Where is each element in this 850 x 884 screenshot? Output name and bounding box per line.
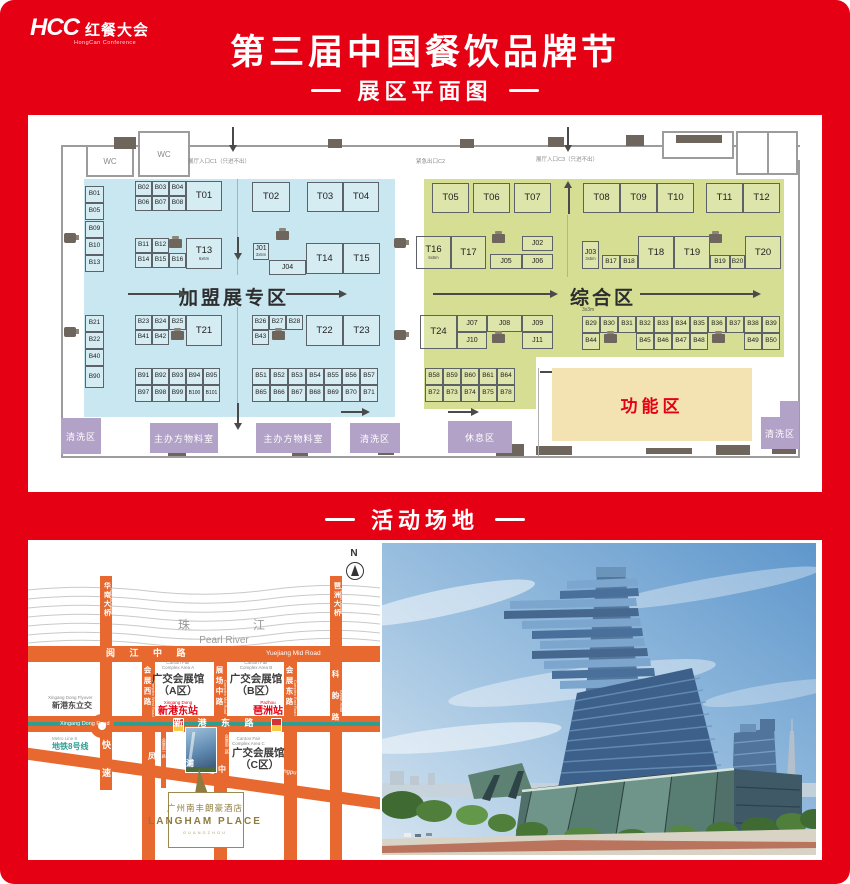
map-label: Complex East Road (292, 680, 297, 716)
booth-label: J04 (282, 264, 293, 271)
booth-B17: B17 (602, 255, 620, 269)
aisle-line (237, 179, 238, 275)
booth-label: B07 (155, 200, 167, 207)
booth-label: B66 (273, 390, 285, 397)
map-label: Xingang Dong (164, 700, 193, 705)
map-label: N (350, 548, 357, 560)
booth-label: B02 (138, 185, 150, 192)
booth-B28: B28 (286, 315, 303, 330)
map-label: 广州南丰朗豪酒店 (167, 803, 243, 813)
booth-B12: B12 (152, 238, 169, 253)
booth-label: B53 (291, 373, 303, 380)
booth-label: B101 (206, 391, 218, 396)
booth-label: B48 (693, 338, 705, 345)
map-label: Yuejiang Mid Road (266, 650, 321, 658)
poster-card: HCC 红餐大会 HongCan Conference 第三届中国餐饮品牌节 展… (0, 0, 850, 884)
booth-label: T08 (593, 193, 609, 203)
booth-label: B95 (206, 373, 218, 380)
booth-B74: B74 (461, 385, 479, 402)
booth-B34: B34 (672, 316, 690, 333)
booth-B33: B33 (654, 316, 672, 333)
booth-label: T13 (196, 246, 212, 256)
map-label: LANGHAM PLACE (148, 816, 262, 828)
cart-icon (492, 234, 505, 243)
booth-label: B39 (765, 321, 777, 328)
booth-T02: T02 (252, 182, 290, 212)
booth-B04: B04 (169, 181, 186, 196)
cart-icon (272, 331, 285, 340)
aisle-arrowhead (564, 181, 572, 188)
map-label: 会展南二路 (224, 734, 229, 754)
booth-label: B20 (732, 259, 744, 266)
booth-B37: B37 (726, 316, 744, 333)
booth-label: B93 (172, 373, 184, 380)
booth-label: B14 (138, 257, 150, 264)
booth-B06: B06 (135, 196, 152, 211)
booth-B45: B45 (636, 333, 654, 350)
booth-size-label: 3x5m (585, 257, 595, 261)
booth-label: B31 (621, 321, 633, 328)
booth-label: B11 (138, 242, 149, 249)
booth-B98: B98 (152, 385, 169, 402)
booth-label: T15 (353, 254, 369, 264)
booth-B52: B52 (270, 368, 288, 385)
booth-T12: T12 (743, 183, 780, 213)
booth-label: B10 (89, 243, 101, 250)
booth-label: T11 (717, 193, 733, 203)
aisle-line (538, 368, 539, 456)
size-note: 3x3m (582, 307, 594, 313)
facility-休息区: 休息区 (448, 421, 512, 453)
aisle-arrow (237, 403, 239, 423)
booth-label: J02 (532, 240, 543, 247)
door-block (460, 139, 474, 148)
hotel-pointer (195, 769, 208, 794)
venue-panel: N珠江Pearl River华南大桥Huanan Bridge琶洲大桥Pazho… (28, 540, 822, 860)
booth-B14: B14 (135, 253, 152, 268)
compass-icon (346, 562, 364, 580)
zone-arrow (128, 293, 180, 295)
booth-B20: B20 (730, 255, 745, 269)
booth-B40: B40 (85, 349, 104, 366)
cart-icon (709, 234, 722, 243)
dash-right (509, 89, 539, 92)
booth-label: B70 (345, 390, 357, 397)
booth-T17: T17 (451, 236, 486, 269)
booth-J06: J06 (522, 254, 553, 269)
map-label: Keyun Road (338, 690, 343, 712)
booth-B78: B78 (497, 385, 515, 402)
booth-B09: B09 (85, 221, 104, 238)
booth-B56: B56 (342, 368, 360, 385)
booth-label: J09 (532, 320, 543, 327)
booth-T15: T15 (343, 243, 380, 274)
facility-清洗区: 清洗区 (350, 423, 400, 453)
booth-label: B34 (675, 321, 687, 328)
booth-label: T04 (353, 192, 369, 202)
booth-T09: T09 (620, 183, 657, 213)
booth-label: B49 (747, 338, 759, 345)
map-label: Metro Line 8 (52, 736, 77, 741)
map-label: Canton Fair Complex Area A (162, 660, 194, 671)
booth-label: B60 (464, 373, 476, 380)
booth-B55: B55 (324, 368, 342, 385)
booth-J01: J013x5m (253, 243, 269, 260)
aisle-arrow (237, 237, 239, 253)
booth-label: B44 (585, 338, 597, 345)
map-label: Canton Fair Complex Area C (232, 736, 265, 747)
booth-T06: T06 (473, 183, 510, 213)
booth-size-label: 3x5m (256, 253, 266, 257)
door-block (548, 137, 564, 147)
booth-B64: B64 (497, 368, 515, 385)
cart-icon (712, 334, 725, 343)
booth-label: B18 (623, 259, 635, 266)
booth-B41: B41 (135, 330, 152, 345)
door-block (328, 139, 342, 148)
booth-label: B15 (155, 257, 167, 264)
booth-label: B67 (291, 390, 303, 397)
map-label: 凤 (148, 752, 156, 762)
booth-B19: B19 (710, 255, 730, 269)
dash-left (325, 518, 355, 521)
booth-B48: B48 (690, 333, 708, 350)
map-label: 珠 (178, 618, 192, 632)
booth-label: B24 (155, 319, 167, 326)
booth-label: B46 (657, 338, 669, 345)
booth-B90: B90 (85, 366, 104, 388)
booth-B72: B72 (425, 385, 443, 402)
booth-label: B33 (657, 321, 669, 328)
booth-label: T14 (316, 254, 332, 264)
utility-icon (64, 327, 76, 337)
booth-label: B78 (500, 390, 512, 397)
booth-label: B69 (327, 390, 339, 397)
map-label: 琶洲站 (253, 706, 283, 718)
map-label: 新港东立交 (52, 701, 92, 711)
aisle-arrow (568, 188, 570, 214)
map-label: 江 (253, 618, 267, 632)
booth-label: B40 (89, 354, 101, 361)
booth-label: J05 (500, 258, 511, 265)
booth-label: B61 (482, 373, 494, 380)
map-label: Xingang Dong Road (60, 721, 110, 728)
booth-T13: T136x6m (186, 238, 222, 269)
map-label: 阅 江 中 路 (106, 648, 192, 659)
booth-label: J01 (255, 245, 266, 252)
booth-J09: J09 (522, 315, 553, 332)
map-label: 会展南一路 (161, 738, 166, 758)
booth-B93: B93 (169, 368, 186, 385)
booth-label: T10 (667, 193, 683, 203)
booth-J03: J033x5m (582, 241, 599, 269)
booth-B26: B26 (252, 315, 269, 330)
booth-B92: B92 (152, 368, 169, 385)
map-label: 新港东站 (158, 706, 198, 718)
booth-J04: J04 (269, 260, 306, 275)
booth-label: T06 (483, 193, 499, 203)
booth-B75: B75 (479, 385, 497, 402)
entry-arrowhead (229, 145, 237, 152)
booth-label: T24 (430, 327, 446, 337)
booth-J02: J02 (522, 236, 553, 251)
booth-size-label: 6x6m (428, 256, 438, 260)
booth-B71: B71 (360, 385, 378, 402)
map-label: （A区） (158, 685, 197, 698)
map-label: Xingang Dong Flyover (48, 695, 93, 700)
booth-label: B37 (729, 321, 741, 328)
booth-T18: T18 (638, 236, 674, 269)
booth-label: B98 (155, 390, 167, 397)
booth-label: B06 (138, 200, 150, 207)
facility-清洗区: 清洗区 (761, 417, 799, 449)
booth-label: B38 (747, 321, 759, 328)
booth-B49: B49 (744, 333, 762, 350)
booth-B65: B65 (252, 385, 270, 402)
aisle-arrowhead (234, 253, 242, 260)
booth-T11: T11 (706, 183, 743, 213)
booth-T14: T14 (306, 243, 343, 274)
map-label: 广交会展馆 (152, 673, 205, 686)
room-divider (767, 131, 769, 175)
map-label: Pearl River (199, 635, 248, 647)
map-label: 地铁8号线 (52, 742, 88, 752)
booth-label: B58 (428, 373, 440, 380)
booth-label: B50 (765, 338, 777, 345)
door-block (114, 137, 136, 149)
utility-icon (64, 233, 76, 243)
booth-label: B17 (605, 259, 617, 266)
booth-B53: B53 (288, 368, 306, 385)
booth-size-label: 6x6m (199, 257, 209, 261)
wc-label-2: WC (157, 150, 170, 159)
booth-label: B42 (155, 334, 167, 341)
booth-label: B65 (255, 390, 267, 397)
booth-B67: B67 (288, 385, 306, 402)
booth-label: T20 (755, 248, 771, 258)
booth-label: B27 (272, 319, 284, 326)
booth-label: B73 (446, 390, 458, 397)
booth-label: T16 (425, 245, 441, 255)
booth-T19: T19 (674, 236, 710, 269)
entrance-label: 展厅入口C1（只进不出） (188, 157, 250, 165)
booth-label: B28 (289, 319, 301, 326)
booth-label: J06 (532, 258, 543, 265)
wc-label-1: WC (103, 157, 116, 166)
booth-B44: B44 (582, 333, 600, 350)
booth-T24: T24 (420, 315, 457, 349)
booth-T22: T22 (306, 315, 343, 346)
booth-B18: B18 (620, 255, 638, 269)
map-label: Pazhou Bridge (338, 588, 343, 614)
booth-label: J03 (585, 249, 596, 256)
booth-label: B56 (345, 373, 357, 380)
aisle-line (237, 307, 238, 415)
booth-B23: B23 (135, 315, 152, 330)
map-label: （B区） (236, 685, 275, 698)
booth-B46: B46 (654, 333, 672, 350)
wc-room-1: WC (86, 145, 134, 177)
yuejiang-road (28, 646, 380, 662)
booth-label: B32 (639, 321, 651, 328)
booth-label: B68 (309, 390, 321, 397)
booth-label: B45 (639, 338, 651, 345)
booth-T10: T10 (657, 183, 694, 213)
booth-label: B90 (89, 374, 101, 381)
zone-label-comprehensive: 综合区 (570, 283, 636, 310)
booth-label: B47 (675, 338, 687, 345)
booth-B59: B59 (443, 368, 461, 385)
booth-B35: B35 (690, 316, 708, 333)
booth-B68: B68 (306, 385, 324, 402)
map-label: Pazhou (260, 700, 275, 705)
door-block (536, 446, 572, 455)
booth-B05: B05 (85, 203, 104, 220)
booth-B16: B16 (169, 253, 186, 268)
booth-label: T19 (684, 248, 700, 258)
zone-label-franchise: 加盟展专区 (179, 283, 289, 310)
booth-B08: B08 (169, 196, 186, 211)
entrance-label: 紧急出口C2 (416, 157, 445, 165)
booth-B50: B50 (762, 333, 780, 350)
booth-label: B29 (585, 321, 597, 328)
booth-B91: B91 (135, 368, 152, 385)
booth-label: B72 (428, 390, 440, 397)
map-label: 快 (102, 740, 111, 751)
booth-label: B03 (155, 185, 167, 192)
booth-T20: T20 (745, 236, 781, 269)
venue-map: N珠江Pearl River华南大桥Huanan Bridge琶洲大桥Pazho… (28, 540, 380, 860)
entrance-label: 展厅入口C3（只进不出） (536, 155, 598, 163)
booth-label: B25 (172, 319, 184, 326)
booth-label: B51 (255, 373, 267, 380)
map-label: 广交会展馆 (232, 747, 285, 760)
page-title: 第三届中国餐饮品牌节 (0, 24, 850, 75)
facility-主办方物料室: 主办方物料室 (256, 423, 331, 453)
dash-right (495, 518, 525, 521)
booth-B70: B70 (342, 385, 360, 402)
booth-label: B22 (89, 337, 101, 344)
map-label: 路 (243, 769, 251, 779)
zone-arrow (433, 293, 551, 295)
booth-label: B54 (309, 373, 321, 380)
booth-T16: T166x6m (416, 236, 451, 269)
booth-B43: B43 (252, 330, 269, 345)
booth-J07: J07 (457, 315, 487, 332)
booth-T08: T08 (583, 183, 620, 213)
booth-label: T05 (442, 193, 458, 203)
cart-icon (604, 334, 617, 343)
booth-B21: B21 (85, 315, 104, 332)
booth-B47: B47 (672, 333, 690, 350)
cart-icon (492, 334, 505, 343)
map-label: 广交会展馆 (230, 673, 283, 686)
section-header-floorplan: 展区平面图 (0, 74, 850, 106)
booth-T23: T23 (343, 315, 380, 346)
section-header-floorplan-label: 展区平面图 (357, 74, 492, 106)
map-label: Fengpu Mid Road (276, 768, 324, 782)
metro-station-icon (271, 718, 282, 732)
cart-icon (171, 331, 184, 340)
booth-label: T23 (353, 326, 369, 336)
flow-arrow (448, 411, 472, 413)
booth-label: T03 (317, 192, 333, 202)
map-label: Canton Fair Complex Area B (240, 660, 273, 671)
booth-label: T07 (524, 193, 540, 203)
booth-B97: B97 (135, 385, 152, 402)
booth-label: T02 (263, 192, 279, 202)
booth-label: B21 (89, 320, 101, 327)
booth-label: B71 (363, 390, 375, 397)
booth-label: B74 (464, 390, 476, 397)
booth-B15: B15 (152, 253, 169, 268)
booth-B58: B58 (425, 368, 443, 385)
booth-label: B23 (138, 319, 150, 326)
map-label: Huanan Bridge (108, 588, 113, 615)
booth-B13: B13 (85, 255, 104, 272)
booth-B94: B94 (186, 368, 203, 385)
booth-label: B04 (172, 185, 184, 192)
booth-label: B01 (89, 191, 101, 198)
booth-B39: B39 (762, 316, 780, 333)
booth-label: B91 (138, 373, 150, 380)
door-block (716, 445, 750, 455)
booth-label: B13 (89, 260, 101, 267)
wc-room-2: WC (138, 131, 190, 177)
door-block (676, 135, 722, 143)
booth-B07: B07 (152, 196, 169, 211)
booth-label: B64 (500, 373, 512, 380)
booth-label: T17 (460, 248, 476, 258)
booth-label: T01 (196, 191, 212, 201)
booth-B54: B54 (306, 368, 324, 385)
entry-arrowhead (564, 145, 572, 152)
aisle-arrowhead (234, 423, 242, 430)
booth-label: B08 (172, 200, 184, 207)
venue-photo (382, 543, 816, 855)
map-label: 中 (218, 765, 226, 775)
map-label: Complex Mid Road (222, 680, 227, 714)
booth-label: B35 (693, 321, 705, 328)
booth-label: B09 (89, 226, 101, 233)
booth-B03: B03 (152, 181, 169, 196)
booth-label: J10 (466, 337, 477, 344)
function-zone: 功能区 (552, 368, 752, 441)
zone-arrow (640, 293, 754, 295)
booth-B02: B02 (135, 181, 152, 196)
booth-label: J07 (466, 320, 477, 327)
booth-B69: B69 (324, 385, 342, 402)
booth-label: T09 (630, 193, 646, 203)
booth-label: B52 (273, 373, 285, 380)
zone-arrow (286, 293, 340, 295)
booth-label: B97 (138, 390, 150, 397)
booth-T04: T04 (343, 182, 379, 212)
dash-left (311, 89, 341, 92)
booth-label: B59 (446, 373, 458, 380)
entry-arrow (232, 127, 234, 145)
flow-arrow (341, 411, 363, 413)
booth-B51: B51 (252, 368, 270, 385)
booth-label: B75 (482, 390, 494, 397)
map-label: 新 港 东 路 (174, 718, 260, 729)
booth-label: B05 (89, 208, 101, 215)
booth-label: B43 (255, 334, 267, 341)
utility-icon (394, 238, 406, 248)
booth-label: B55 (327, 373, 339, 380)
cart-icon (276, 231, 289, 240)
booth-label: B30 (603, 321, 615, 328)
